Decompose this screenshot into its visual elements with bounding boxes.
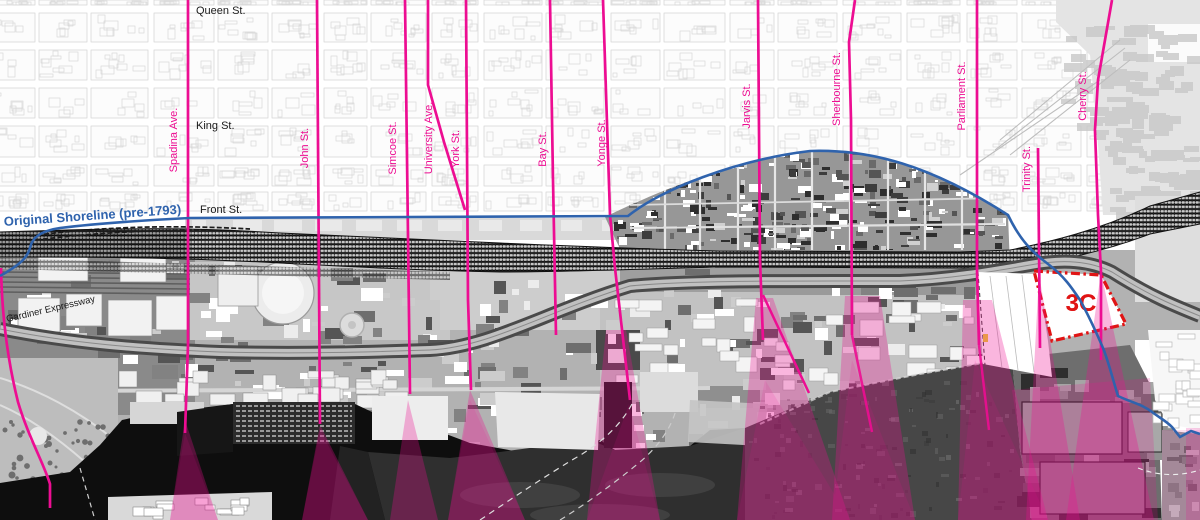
svg-text:Trinity St.: Trinity St. (1021, 146, 1033, 192)
svg-text:Simcoe St.: Simcoe St. (387, 121, 399, 174)
svg-text:Bay St.: Bay St. (537, 131, 549, 166)
svg-text:John St.: John St. (299, 128, 311, 168)
svg-text:York St.: York St. (450, 130, 462, 168)
svg-text:Yonge St.: Yonge St. (596, 119, 608, 166)
svg-text:Cherry St.: Cherry St. (1077, 71, 1089, 121)
svg-text:Sherbourne St.: Sherbourne St. (831, 52, 843, 126)
svg-text:Parliament St.: Parliament St. (956, 61, 968, 130)
svg-text:Queen St.: Queen St. (196, 5, 246, 17)
svg-text:University Ave.: University Ave. (423, 102, 435, 175)
svg-text:King St.: King St. (196, 120, 235, 132)
svg-text:Front St.: Front St. (200, 204, 242, 216)
svg-text:Jarvis St.: Jarvis St. (741, 83, 753, 128)
svg-text:Spadina Ave.: Spadina Ave. (168, 108, 180, 173)
